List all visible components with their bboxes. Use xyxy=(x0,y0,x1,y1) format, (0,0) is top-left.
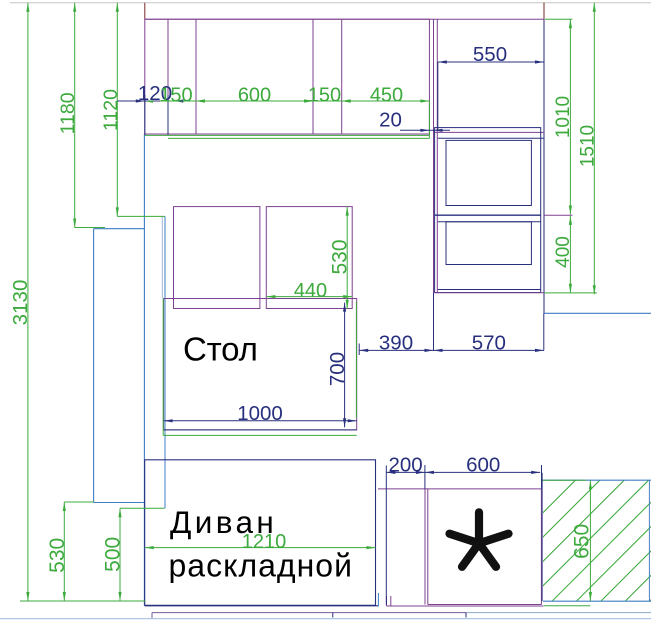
svg-text:700: 700 xyxy=(326,352,349,386)
svg-text:1120: 1120 xyxy=(100,89,122,131)
svg-text:500: 500 xyxy=(102,537,125,572)
svg-text:1180: 1180 xyxy=(57,92,79,134)
svg-text:Стол: Стол xyxy=(183,330,258,367)
svg-text:440: 440 xyxy=(294,280,327,302)
svg-text:150: 150 xyxy=(159,85,192,107)
svg-text:530: 530 xyxy=(328,239,351,274)
svg-text:550: 550 xyxy=(473,43,507,66)
svg-text:1000: 1000 xyxy=(237,402,283,425)
svg-text:3130: 3130 xyxy=(9,280,32,326)
svg-text:530: 530 xyxy=(46,538,69,573)
svg-text:1210: 1210 xyxy=(242,531,287,553)
svg-text:570: 570 xyxy=(472,331,506,354)
svg-text:450: 450 xyxy=(370,85,403,107)
svg-text:20: 20 xyxy=(379,109,402,132)
svg-text:1010: 1010 xyxy=(553,96,574,138)
svg-text:400: 400 xyxy=(553,236,574,268)
svg-text:600: 600 xyxy=(238,85,271,107)
svg-text:200: 200 xyxy=(388,453,422,476)
svg-text:150: 150 xyxy=(308,85,341,107)
svg-text:1510: 1510 xyxy=(577,125,598,167)
svg-text:600: 600 xyxy=(466,453,500,476)
svg-text:650: 650 xyxy=(570,524,593,559)
svg-text:390: 390 xyxy=(379,331,413,354)
